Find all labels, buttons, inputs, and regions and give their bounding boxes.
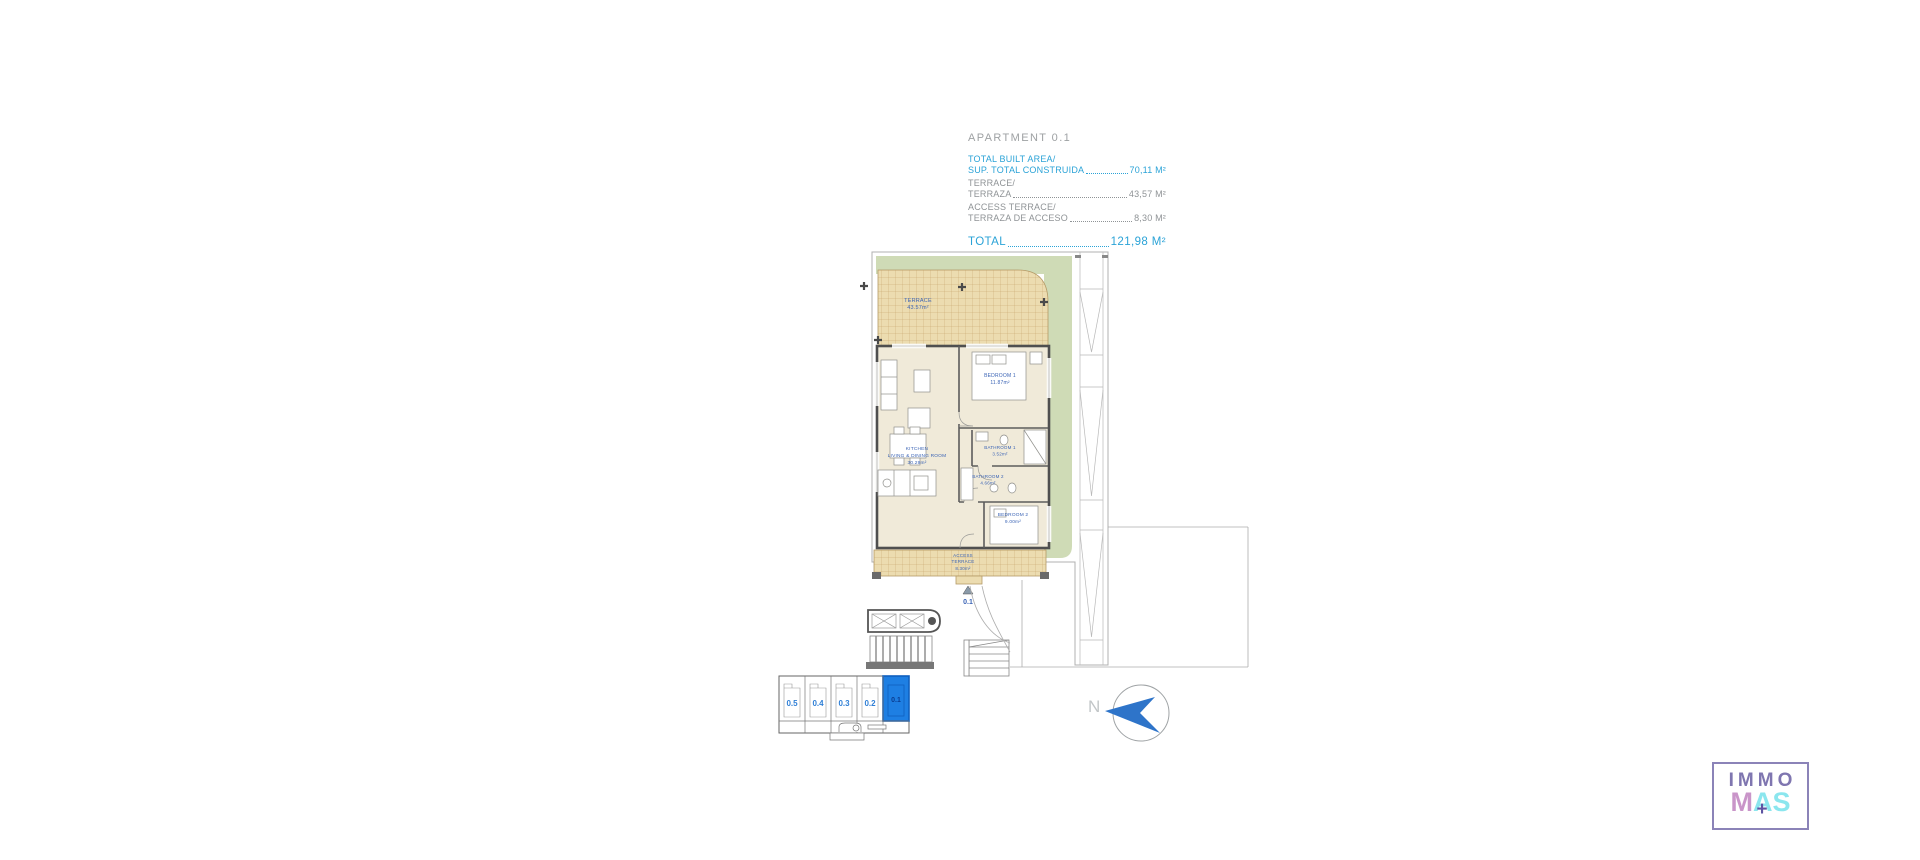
key-plan-unit-0-4: 0.4 [812,699,824,708]
terrace-area-value: 43.57m² [907,305,929,311]
apartment-interior: BEDROOM 1 11.87m² BATHROOM 1 3.52m² BATH… [875,344,1052,548]
bathroom1-label: BATHROOM 1 [984,445,1016,450]
terrace-area: TERRACE 43.57m² [878,270,1048,346]
built-area-label-en: TOTAL BUILT AREA/ [968,154,1166,165]
key-plan-unit-0-5: 0.5 [786,699,798,708]
compass-north-label: N [1088,697,1101,717]
access-terrace-label1: ACCESS [953,553,973,558]
terrace-value: 43,57 M² [1129,189,1166,200]
bathroom2-label: BATHROOM 2 [972,474,1004,479]
bedroom1-area: 11.87m² [990,380,1010,386]
bedroom2-label: BEDROOM 2 [998,512,1029,518]
logo-letter-s: S [1772,787,1790,817]
exterior-stair [964,640,1009,676]
terrace-label-es: TERRAZA [968,189,1011,200]
access-terrace-area-value: 8.30m² [955,566,971,571]
bedroom1-label: BEDROOM 1 [984,373,1016,379]
unit-marker-label: 0.1 [963,599,973,606]
floor-plan: TERRACE 43.57m² [860,200,1260,680]
page: APARTMENT 0.1 TOTAL BUILT AREA/ SUP. TOT… [0,0,1920,860]
logo-letter-m: M [1730,787,1753,817]
terrace-label-en: TERRACE/ [968,178,1166,189]
kitchen-area: 30.29m² [908,460,927,466]
key-plan: 0.5 0.4 0.3 0.2 0.1 [772,668,922,753]
key-plan-unit-0-2: 0.2 [864,699,876,708]
unit-marker: 0.1 [963,586,973,606]
compass [1085,683,1195,758]
bathroom2-area: 4.66m² [980,481,996,486]
key-plan-unit-0-3: 0.3 [838,699,850,708]
built-area-value: 70,11 M² [1130,165,1166,176]
balustrade [866,610,940,669]
kitchen-label: KITCHEN [906,446,929,452]
kitchen-label2: LIVING & DINING ROOM [888,453,947,459]
key-plan-unit-0-1: 0.1 [891,697,901,704]
built-area-label-es: SUP. TOTAL CONSTRUIDA [968,165,1084,176]
apartment-title: APARTMENT 0.1 [968,132,1166,144]
dotted-leader [1013,197,1126,198]
terrace-row: TERRACE/ TERRAZA 43,57 M² [968,178,1166,199]
bedroom2-area: 9.00m² [1005,519,1021,525]
immomas-logo: IMMO MAS + [1712,762,1809,830]
logo-mas-text: MAS + [1730,790,1790,816]
access-terrace-label2: TERRACE [952,559,975,564]
dotted-leader [1086,173,1127,174]
built-area-row: TOTAL BUILT AREA/ SUP. TOTAL CONSTRUIDA … [968,154,1166,175]
logo-plus-icon: + [1756,801,1767,819]
access-terrace-area: ACCESS TERRACE 8.30m² [872,550,1049,584]
bathroom1-area: 3.52m² [992,452,1008,457]
terrace-label: TERRACE [904,298,932,304]
